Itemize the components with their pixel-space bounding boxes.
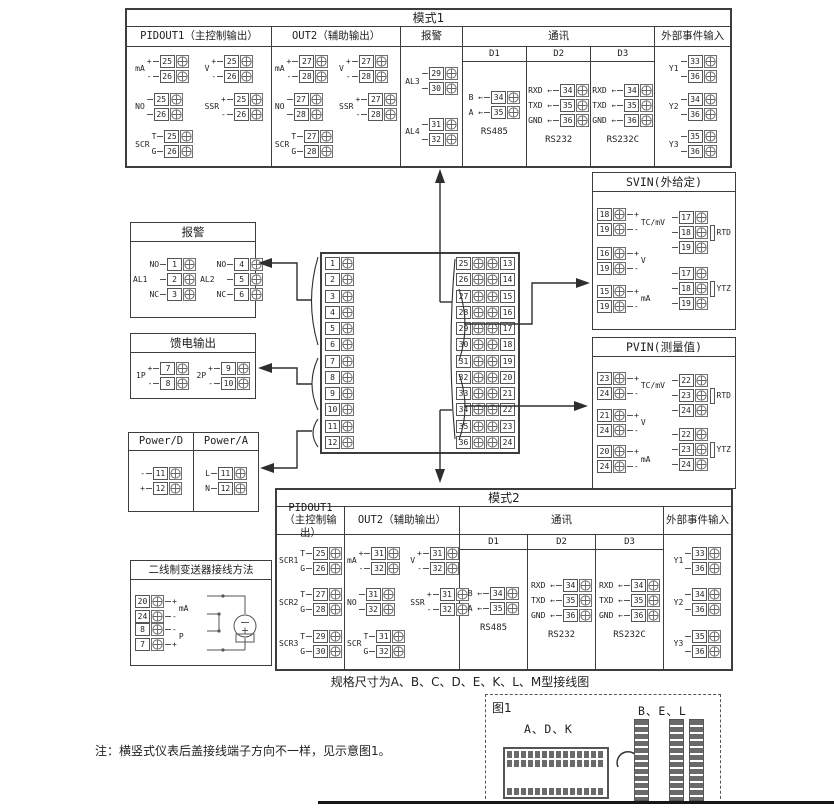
wiring-group: AL1NO12NC3	[133, 258, 196, 301]
wiring-group: SSR+27-28	[339, 93, 397, 121]
transmitter-terminals: 20+24-mA8-7+P	[131, 592, 205, 654]
group-label: mA	[135, 64, 145, 73]
screw-terminal-icon	[387, 547, 400, 560]
terminal: -32	[417, 562, 459, 575]
power-d-title: Power/D	[129, 433, 193, 451]
terminal-number: 4	[325, 306, 340, 319]
group-label: NO	[135, 102, 145, 111]
screw-terminal-icon	[704, 108, 717, 121]
wire	[423, 568, 429, 569]
screw-terminal-icon	[446, 562, 459, 575]
terminal-number: 29	[429, 67, 444, 80]
wire	[422, 139, 428, 140]
terminal-post-label: -	[634, 389, 639, 398]
terminal: -26	[221, 108, 263, 121]
wiring-group: 1P+7-8	[136, 362, 189, 390]
terminal: 34	[681, 93, 717, 106]
wiring-group: 20+24-mA	[597, 445, 650, 473]
wire	[157, 136, 163, 137]
screw-terminal-icon	[320, 130, 333, 143]
alarm-box: 报警 AL1NO12NC3AL2NO45NC6	[130, 222, 256, 318]
terminal-number: 26	[313, 562, 328, 575]
terminal-number: 35	[563, 594, 578, 607]
terminal-pre-label: -	[355, 110, 360, 119]
terminal-number: 6	[234, 288, 249, 301]
wire	[685, 594, 691, 595]
feed-output-body: 1P+7-82P+9-10	[131, 353, 255, 398]
terminal-number: 5	[325, 322, 340, 335]
terminal-pre-label: +	[417, 549, 422, 558]
svin-title: SVIN(外给定)	[593, 173, 735, 192]
group-label: Y2	[669, 102, 679, 111]
wire	[553, 90, 559, 91]
terminal-number: 8	[135, 623, 150, 636]
terminal-pre-label: NO	[149, 260, 159, 269]
group-label: SCR3	[279, 639, 298, 648]
screw-terminal-icon	[234, 467, 247, 480]
terminal-number: 9	[221, 362, 236, 375]
wire	[617, 90, 623, 91]
terminal-number: 24	[135, 610, 150, 623]
terminal-number: 12	[218, 482, 233, 495]
terminal: T27	[300, 588, 342, 601]
wire	[153, 383, 159, 384]
wire	[433, 609, 439, 610]
group-label: Y3	[669, 140, 679, 149]
group-label: SCR	[347, 639, 361, 648]
wire	[681, 136, 687, 137]
terminal-number: 19	[500, 355, 515, 368]
terminal: 24	[672, 458, 708, 471]
screw-terminal-icon	[234, 482, 247, 495]
terminal-number: 19	[679, 297, 694, 310]
terminal-pre-label: T	[363, 632, 368, 641]
mode-column: 外部事件输入Y13336Y23436Y33536	[655, 27, 730, 166]
terminal-number: 22	[679, 374, 694, 387]
screw-terminal-icon	[695, 282, 708, 295]
terminal-row: 9	[325, 387, 354, 400]
screw-terminal-icon	[695, 458, 708, 471]
wiring-group: -11+12	[140, 467, 182, 495]
screw-terminal-icon	[695, 374, 708, 387]
terminal-number: 34	[490, 587, 505, 600]
terminal-row: 5	[325, 322, 354, 335]
terminal-number: 24	[597, 424, 612, 437]
screw-terminal-icon	[169, 467, 182, 480]
screw-terminal-icon	[329, 645, 342, 658]
wiring-group: B ←34A ←35	[468, 587, 519, 615]
screw-terminal-icon	[170, 108, 183, 121]
terminal-number: 32	[371, 562, 386, 575]
terminal-row: 3523	[456, 420, 515, 433]
feed-output-box: 馈电输出 1P+7-82P+9-10	[130, 333, 256, 399]
terminal-post-label: +	[634, 374, 639, 383]
terminal: 19	[672, 297, 708, 310]
terminal-number: 30	[313, 645, 328, 658]
wire	[306, 553, 312, 554]
comm-standard-label: RS232C	[607, 135, 640, 145]
wire	[672, 410, 678, 411]
terminal-number: 3	[325, 290, 340, 303]
group-label: P	[179, 632, 184, 641]
terminal-number: 17	[679, 211, 694, 224]
wiring-group: SSR+25-26	[205, 93, 263, 121]
terminal-pre-label: G	[291, 147, 296, 156]
mode-column: 外部事件输入Y13336Y23436Y33536	[664, 507, 731, 669]
screw-terminal-icon	[445, 133, 458, 146]
wiring-group: B ←34A ←35	[469, 91, 520, 119]
screw-terminal-icon	[486, 436, 499, 449]
terminal: 28	[287, 108, 323, 121]
mode-column-header: 通讯	[460, 507, 663, 535]
screw-terminal-icon	[472, 371, 485, 384]
figure1-group-a-label: A、D、K	[524, 721, 573, 737]
terminal-row: 3	[325, 290, 354, 303]
screw-terminal-icon	[695, 428, 708, 441]
terminal-number: 11	[218, 467, 233, 480]
wire	[484, 97, 490, 98]
group-label: 1P	[136, 371, 146, 380]
wiring-group: Y33536	[669, 130, 717, 158]
power-a-title: Power/A	[194, 433, 258, 451]
terminal-post-label: -	[172, 612, 177, 621]
screw-terminal-icon	[576, 84, 589, 97]
terminal: A ←35	[468, 602, 519, 615]
terminal-number: 36	[692, 603, 707, 616]
wire	[147, 114, 153, 115]
terminal-pre-label: -	[208, 379, 213, 388]
wire	[165, 616, 171, 617]
wiring-group: 15+19-mA	[597, 285, 650, 313]
terminal-row: 3018	[456, 338, 515, 351]
terminal: 18	[672, 282, 708, 295]
terminal: 26	[147, 108, 183, 121]
terminal-number: 19	[597, 262, 612, 275]
terminal-pre-label: G	[363, 647, 368, 656]
terminal-row: 3422	[456, 403, 515, 416]
wire	[211, 473, 217, 474]
terminal-number: 24	[597, 460, 612, 473]
terminal-pre-label: TXD ←	[592, 101, 616, 110]
screw-terminal-icon	[445, 67, 458, 80]
screw-terminal-icon	[180, 130, 193, 143]
terminal-post-label: +	[634, 447, 639, 456]
terminal-number: 30	[429, 82, 444, 95]
screw-terminal-icon	[708, 630, 721, 643]
terminal-pre-label: RXD ←	[528, 86, 552, 95]
group-label: SSR	[205, 102, 219, 111]
terminal-number: 32	[366, 603, 381, 616]
screw-terminal-icon	[695, 297, 708, 310]
terminal-number: 26	[154, 108, 169, 121]
screw-terminal-icon	[151, 638, 164, 651]
terminal-row: 2614	[456, 273, 515, 286]
wire	[556, 615, 562, 616]
wire	[361, 99, 367, 100]
wire	[364, 553, 370, 554]
terminal: +31	[359, 547, 401, 560]
wire	[227, 279, 233, 280]
comm-subcolumn-header: D3	[596, 535, 663, 550]
terminal: GND ←36	[528, 114, 589, 127]
wiring-group: V+25-26	[205, 55, 263, 83]
terminal-post-label: +	[634, 287, 639, 296]
screw-terminal-icon	[695, 267, 708, 280]
terminal-number: 36	[456, 436, 471, 449]
screw-terminal-icon	[315, 55, 328, 68]
wiring-group: Y23436	[674, 588, 722, 616]
wire	[627, 451, 633, 452]
terminal-post-label: -	[172, 625, 177, 634]
terminal-number: 29	[456, 322, 471, 335]
wire	[627, 291, 633, 292]
terminal-row: 3321	[456, 387, 515, 400]
terminal: 2	[160, 273, 196, 286]
terminal: 19-	[597, 300, 639, 313]
screw-terminal-icon	[640, 114, 653, 127]
wire	[627, 466, 633, 467]
terminal: 36	[685, 645, 721, 658]
screw-terminal-icon	[472, 403, 485, 416]
power-a-column: Power/A L11N12	[194, 433, 258, 511]
screw-terminal-icon	[151, 595, 164, 608]
screw-terminal-icon	[315, 70, 328, 83]
wire	[556, 600, 562, 601]
mode-column-header: OUT2（辅助输出）	[272, 27, 400, 47]
comm-standard-label: RS485	[480, 623, 507, 633]
wire	[153, 76, 159, 77]
comm-standard-label: RS232	[548, 630, 575, 640]
terminal-number: 25	[234, 93, 249, 106]
terminal-number: 23	[679, 389, 694, 402]
figure1-group-b-label: B、E、L	[638, 703, 687, 719]
screw-terminal-icon	[695, 443, 708, 456]
wire	[146, 488, 152, 489]
terminal-post-label: -	[634, 225, 639, 234]
svin-box: SVIN(外给定) 18+19-TC/mV16+19-V15+19-mA 171…	[592, 172, 736, 330]
terminal: NC3	[149, 288, 196, 301]
terminal: 17	[672, 211, 708, 224]
wire	[165, 629, 171, 630]
screw-terminal-icon	[576, 114, 589, 127]
terminal: 18+	[597, 208, 639, 221]
terminal-block-right-columns: 2513261427152816291730183119322033213422…	[456, 257, 515, 449]
pvin-box: PVIN(测量值) 23+24-TC/mV21+24-V20+24-mA 222…	[592, 337, 736, 489]
terminal-row: 4	[325, 306, 354, 319]
wiring-group: 16+19-V	[597, 247, 646, 275]
terminal-pre-label: A ←	[469, 108, 483, 117]
terminal-number: 34	[688, 93, 703, 106]
mode1-title: 模式1	[127, 10, 730, 27]
terminal: 27	[287, 93, 323, 106]
terminal: 29	[422, 67, 458, 80]
terminal-number: 32	[456, 371, 471, 384]
terminal-number: 24	[597, 387, 612, 400]
screw-terminal-icon	[250, 288, 263, 301]
terminal-row: 2917	[456, 322, 515, 335]
terminal: +27	[346, 55, 388, 68]
wire	[214, 368, 220, 369]
wiring-group: 20+24-mA	[135, 595, 188, 623]
terminal-number: 7	[325, 355, 340, 368]
terminal-number: 26	[224, 70, 239, 83]
terminal-pre-label: TXD ←	[528, 101, 552, 110]
terminal-number: 17	[679, 267, 694, 280]
terminal: 19-	[597, 262, 639, 275]
terminal-pre-label: T	[291, 132, 296, 141]
terminal-pre-label: -	[427, 605, 432, 614]
terminal-pre-label: +	[208, 364, 213, 373]
screw-terminal-icon	[384, 93, 397, 106]
wire	[627, 415, 633, 416]
terminal-pre-label: G	[300, 647, 305, 656]
terminal-number: 13	[500, 257, 515, 270]
terminal-post-label: -	[634, 426, 639, 435]
terminal-number: 36	[563, 609, 578, 622]
screw-terminal-icon	[183, 258, 196, 271]
group-label: Y1	[669, 64, 679, 73]
terminal-number: 23	[500, 420, 515, 433]
wire	[627, 306, 633, 307]
terminal-pre-label: NC	[149, 290, 159, 299]
screw-terminal-icon	[579, 579, 592, 592]
terminal-pre-label: -	[287, 72, 292, 81]
screw-terminal-icon	[613, 223, 626, 236]
group-label: AL1	[133, 275, 147, 284]
terminal: GND ←36	[592, 114, 653, 127]
group-label: TC/mV	[641, 381, 665, 390]
vertical-connector-strip-left	[634, 719, 649, 801]
terminal-number: 26	[234, 108, 249, 121]
terminal: 30	[422, 82, 458, 95]
wiring-group: mA+25-26	[135, 55, 193, 83]
wiring-group: Y13336	[669, 55, 717, 83]
terminal-pre-label: +	[427, 590, 432, 599]
terminal-number: 32	[440, 603, 455, 616]
wiring-group: mA+27-28	[275, 55, 333, 83]
wiring-group: Y23436	[669, 93, 717, 121]
screw-terminal-icon	[341, 273, 354, 286]
transmitter-box-title: 二线制变送器接线方法	[131, 561, 271, 580]
terminal-number: 36	[688, 70, 703, 83]
screw-terminal-icon	[472, 273, 485, 286]
terminal-number: 34	[692, 588, 707, 601]
mode1-table: 模式1 PIDOUT1（主控制输出）mA+25-26V+25-26NO2526S…	[125, 8, 732, 168]
screw-terminal-icon	[486, 338, 499, 351]
wire	[685, 651, 691, 652]
screw-terminal-icon	[472, 436, 485, 449]
wiring-group: 171819YTZ	[672, 267, 731, 310]
terminal-pre-label: GND ←	[528, 116, 552, 125]
terminal-pre-label: G	[300, 605, 305, 614]
alarm-box-title: 报警	[131, 223, 255, 242]
terminal: L11	[205, 467, 247, 480]
terminal-pre-label: +	[211, 57, 216, 66]
terminal-row: 12	[325, 436, 354, 449]
wiring-group: SCRT31G32	[347, 630, 405, 658]
screw-terminal-icon	[613, 300, 626, 313]
terminal-post-label: +	[172, 597, 177, 606]
terminal-pre-label: -	[147, 72, 152, 81]
terminal: 23	[672, 443, 708, 456]
terminal-number: 18	[679, 226, 694, 239]
wire	[306, 568, 312, 569]
screw-terminal-icon	[576, 99, 589, 112]
wire	[627, 229, 633, 230]
terminal: 17	[672, 267, 708, 280]
terminal-number: 36	[692, 562, 707, 575]
mode-column: 通讯D1B ←34A ←35RS485D2RXD ←34TXD ←35GND ←…	[463, 27, 656, 166]
terminal-number: 2	[325, 273, 340, 286]
screw-terminal-icon	[486, 403, 499, 416]
screw-terminal-icon	[613, 460, 626, 473]
screw-terminal-icon	[183, 288, 196, 301]
screw-terminal-icon	[310, 108, 323, 121]
screw-terminal-icon	[382, 588, 395, 601]
terminal-pre-label: +	[287, 57, 292, 66]
comm-subcolumn: D2RXD ←34TXD ←35GND ←36RS232	[527, 47, 591, 166]
screw-terminal-icon	[472, 338, 485, 351]
terminal-number: 22	[500, 403, 515, 416]
group-label: NO	[347, 598, 357, 607]
screw-terminal-icon	[486, 273, 499, 286]
terminal: -10	[208, 377, 250, 390]
wiring-group: RXD ←34TXD ←35GND ←36	[599, 579, 660, 622]
screw-terminal-icon	[472, 387, 485, 400]
terminal-pre-label: +	[346, 57, 351, 66]
mode-column-header: PIDOUT1（主控制输出）	[277, 507, 344, 535]
terminal: 15+	[597, 285, 639, 298]
screw-terminal-icon	[329, 547, 342, 560]
terminal: 25	[147, 93, 183, 106]
wiring-group: AL2NO45NC6	[200, 258, 263, 301]
wire	[624, 615, 630, 616]
wire	[672, 232, 678, 233]
screw-terminal-icon	[151, 610, 164, 623]
terminal-number: 34	[491, 91, 506, 104]
group-label: 2P	[197, 371, 207, 380]
wire	[214, 383, 220, 384]
terminal-number: 18	[597, 208, 612, 221]
terminal-pre-label: +	[355, 95, 360, 104]
terminal-post-label: -	[634, 462, 639, 471]
terminal-pre-label: -	[140, 469, 145, 478]
terminal-number: 32	[430, 562, 445, 575]
screw-terminal-icon	[384, 108, 397, 121]
screw-terminal-icon	[472, 290, 485, 303]
terminal-number: 28	[299, 70, 314, 83]
screw-terminal-icon	[250, 93, 263, 106]
horizontal-connector-drawing	[503, 747, 609, 799]
wire	[681, 76, 687, 77]
wire	[627, 393, 633, 394]
screw-terminal-icon	[507, 106, 520, 119]
terminal-pre-label: G	[152, 147, 157, 156]
terminal-number: 35	[456, 420, 471, 433]
group-label: YTZ	[717, 284, 731, 293]
wire	[483, 593, 489, 594]
screw-terminal-icon	[613, 409, 626, 422]
screw-terminal-icon	[237, 362, 250, 375]
wiring-group: RXD ←34TXD ←35GND ←36	[592, 84, 653, 127]
terminal-number: 16	[500, 306, 515, 319]
group-label: AL2	[200, 275, 214, 284]
comm-subcolumn: D1B ←34A ←35RS485	[460, 535, 528, 669]
terminal: -28	[346, 70, 388, 83]
terminal-pre-label: +	[148, 364, 153, 373]
wiring-group: SCRT25G26	[135, 130, 193, 158]
terminal: T25	[152, 130, 194, 143]
